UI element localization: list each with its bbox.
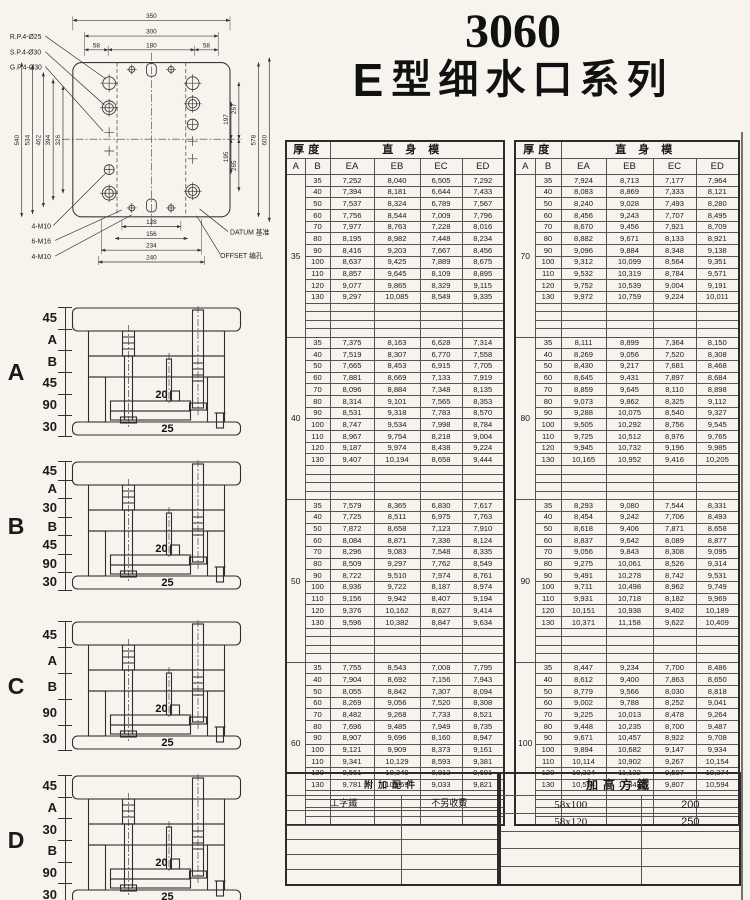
riser-row: 58x120250 <box>500 813 740 831</box>
diagram-letter: A <box>4 303 28 441</box>
price-cell: 9,400 <box>606 674 653 686</box>
price-cell: 7,617 <box>462 500 504 512</box>
price-row: 908,4169,2037,6678,456 <box>286 245 504 257</box>
price-cell: 7,433 <box>462 186 504 198</box>
riser-price-cell <box>641 831 740 849</box>
price-cell: 9,376 <box>330 605 374 617</box>
price-cell: 8,627 <box>420 605 462 617</box>
price-cell: 10,129 <box>374 756 420 768</box>
price-cell: 8,974 <box>462 581 504 593</box>
price-row: 1009,31210,0998,5649,351 <box>515 256 739 268</box>
price-cell: 7,519 <box>330 349 374 361</box>
price-cell: 9,534 <box>374 419 420 431</box>
price-cell: 7,665 <box>330 360 374 372</box>
price-cell: 9,318 <box>374 407 420 419</box>
accessories-left-table: 附加配件工字鐵不另收費 <box>285 772 499 886</box>
dim-label: 240 <box>146 255 157 262</box>
col-header: A <box>515 159 535 175</box>
price-cell: 80 <box>535 396 561 408</box>
price-cell: 110 <box>305 593 330 605</box>
price-cell: 90 <box>535 245 561 257</box>
price-cell: 10,457 <box>606 732 653 744</box>
price-cell: 7,133 <box>420 372 462 384</box>
mold-section-drawing: 2025 <box>64 305 254 437</box>
price-row: 12010,15110,9389,40210,189 <box>515 605 739 617</box>
price-cell: 9,267 <box>653 756 696 768</box>
price-cell: 9,431 <box>606 372 653 384</box>
price-row: 407,5198,3076,7707,558 <box>286 349 504 361</box>
price-cell: 8,456 <box>462 245 504 257</box>
empty-row <box>515 474 739 483</box>
price-cell: 60 <box>535 210 561 222</box>
price-row: 607,7568,5447,0097,796 <box>286 210 504 222</box>
riser-size-cell: 58x100 <box>500 796 641 814</box>
price-cell: 7,919 <box>462 372 504 384</box>
price-cell: 11,158 <box>606 617 653 629</box>
price-cell: 9,002 <box>561 697 606 709</box>
price-cell: 10,075 <box>606 407 653 419</box>
price-cell: 8,658 <box>374 523 420 535</box>
price-cell: 9,242 <box>606 511 653 523</box>
price-cell: 10,165 <box>561 454 606 466</box>
price-cell: 9,456 <box>606 221 653 233</box>
hole-pattern <box>102 64 199 212</box>
price-row: 1009,1219,9098,3739,161 <box>286 744 504 756</box>
price-cell: 10,371 <box>561 617 606 629</box>
price-cell: 50 <box>305 523 330 535</box>
dim-label: 540 <box>14 134 21 145</box>
price-cell: 7,008 <box>420 662 462 674</box>
price-cell: 8,269 <box>330 697 374 709</box>
dim-label: A <box>28 797 64 819</box>
price-cell: 10,151 <box>561 605 606 617</box>
accessories-header-row: 附加配件 <box>286 773 498 796</box>
price-cell: 7,520 <box>653 349 696 361</box>
price-cell: 9,985 <box>696 442 739 454</box>
callout-m10-2: 4-M10 <box>32 254 52 261</box>
price-cell: 60 <box>305 697 330 709</box>
header-thickness: 厚度 <box>286 141 330 159</box>
price-cell: 35 <box>305 337 330 349</box>
price-cell: 7,974 <box>420 570 462 582</box>
accessory-cell <box>401 840 498 855</box>
mold-structure-diagram-c: C45AB90302025 <box>4 617 270 755</box>
price-cell: 8,016 <box>462 221 504 233</box>
price-cell: 6,505 <box>420 175 462 187</box>
price-cell: 10,162 <box>374 605 420 617</box>
price-row: 807,6969,4857,9498,735 <box>286 721 504 733</box>
dim-label: A <box>28 647 64 673</box>
price-cell: 8,936 <box>330 581 374 593</box>
price-cell: 8,133 <box>653 233 696 245</box>
price-cell: 80 <box>305 233 330 245</box>
col-header: ED <box>696 159 739 175</box>
price-cell: 9,645 <box>374 268 420 280</box>
empty-row <box>515 312 739 321</box>
price-row: 508,6189,4067,8718,658 <box>515 523 739 535</box>
price-cell: 8,308 <box>462 697 504 709</box>
empty-row <box>515 329 739 338</box>
price-row: 407,7258,5116,9757,763 <box>286 511 504 523</box>
price-cell: 9,115 <box>462 280 504 292</box>
price-cell: 8,150 <box>696 337 739 349</box>
col-header: EB <box>606 159 653 175</box>
price-cell: 60 <box>535 372 561 384</box>
price-cell: 6,770 <box>420 349 462 361</box>
series-name: 型细水口系列 <box>391 59 673 101</box>
price-cell: 7,681 <box>653 360 696 372</box>
price-cell: 8,982 <box>374 233 420 245</box>
price-cell: 100 <box>535 744 561 756</box>
price-cell: 7,696 <box>330 721 374 733</box>
price-cell: 100 <box>535 581 561 593</box>
dim-label: 197 <box>223 114 230 125</box>
dim-label: 45 <box>28 461 64 480</box>
price-cell: 9,485 <box>374 721 420 733</box>
price-cell: 10,154 <box>696 756 739 768</box>
price-cell: 8,407 <box>420 593 462 605</box>
price-cell: 8,761 <box>462 570 504 582</box>
price-row: 1108,9679,7548,2189,004 <box>286 431 504 443</box>
price-cell: 8,882 <box>561 233 606 245</box>
price-cell: 6,915 <box>420 360 462 372</box>
price-cell: 9,708 <box>696 732 739 744</box>
dim-label: 90 <box>28 862 64 884</box>
price-cell: 8,329 <box>420 280 462 292</box>
price-cell: 40 <box>305 674 330 686</box>
empty-row <box>286 303 504 312</box>
price-cell: 50 <box>535 360 561 372</box>
price-cell: 10,114 <box>561 756 606 768</box>
price-cell: 110 <box>535 268 561 280</box>
price-cell: 10,938 <box>606 605 653 617</box>
dim-label: 578 <box>251 134 258 145</box>
price-cell: 8,454 <box>561 511 606 523</box>
price-cell: 9,056 <box>606 349 653 361</box>
price-cell: 100 <box>305 419 330 431</box>
price-cell: 7,292 <box>462 175 504 187</box>
price-cell: 10,718 <box>606 593 653 605</box>
price-row: 1309,40710,1948,6589,444 <box>286 454 504 466</box>
price-cell: 8,182 <box>653 593 696 605</box>
price-cell: 8,482 <box>330 709 374 721</box>
price-subheader-row: ABEAEBECED <box>286 159 504 175</box>
price-row: 408,0838,8697,3338,121 <box>515 186 739 198</box>
header-straight-mold: 直身模 <box>330 141 504 159</box>
price-cell: 10,189 <box>696 605 739 617</box>
price-cell: 8,658 <box>696 523 739 535</box>
price-cell: 8,324 <box>374 198 420 210</box>
mold-structure-diagram-a: A45AB4590302025 <box>4 303 270 441</box>
price-cell: 7,733 <box>420 709 462 721</box>
price-row: 1309,59610,3828,8479,634 <box>286 617 504 629</box>
price-cell: 8,779 <box>561 686 606 698</box>
price-cell: 9,634 <box>462 617 504 629</box>
price-row: 1309,29710,0858,5499,335 <box>286 291 504 303</box>
price-cell: 120 <box>305 605 330 617</box>
price-cell: 9,531 <box>696 570 739 582</box>
price-cell: 9,416 <box>653 454 696 466</box>
price-cell: 8,181 <box>374 186 420 198</box>
price-cell: 8,416 <box>330 245 374 257</box>
price-cell: 9,297 <box>374 558 420 570</box>
price-row: 1309,97210,7599,22410,011 <box>515 291 739 303</box>
price-row: 408,4549,2427,7068,493 <box>515 511 739 523</box>
riser-price-cell <box>641 867 740 885</box>
price-cell: 7,795 <box>462 662 504 674</box>
price-cell: 110 <box>535 593 561 605</box>
mold-plan-drawing: 350 300 58 180 58 540 534 462 394 326 57… <box>6 6 286 294</box>
dim-label: 394 <box>45 134 52 145</box>
dim-label: 267 <box>231 103 238 114</box>
price-cell: 9,187 <box>330 442 374 454</box>
price-cell: 10,205 <box>696 454 739 466</box>
price-cell: 8,612 <box>561 674 606 686</box>
price-cell: 9,341 <box>330 756 374 768</box>
price-cell: 9,532 <box>561 268 606 280</box>
riser-header-row: 加高方鐵 <box>500 773 740 796</box>
riser-price-cell: 250 <box>641 813 740 831</box>
price-row: 808,3149,1017,5658,353 <box>286 396 504 408</box>
price-cell: 8,252 <box>653 697 696 709</box>
price-cell: 10,732 <box>606 442 653 454</box>
price-row: 1209,94510,7329,1969,985 <box>515 442 739 454</box>
callout-return-pin: R.P.4-Ø25 <box>10 34 42 41</box>
price-cell: 10,194 <box>374 454 420 466</box>
price-cell: 9,203 <box>374 245 420 257</box>
price-cell: 8,869 <box>606 186 653 198</box>
price-cell: 9,865 <box>374 280 420 292</box>
diagram-letter: D <box>4 771 28 900</box>
riser-row <box>500 849 740 867</box>
price-cell: 8,353 <box>462 396 504 408</box>
price-cell: 7,700 <box>653 662 696 674</box>
price-cell: 10,759 <box>606 291 653 303</box>
price-cell: 100 <box>305 581 330 593</box>
price-cell: 9,041 <box>696 697 739 709</box>
price-row: 608,6459,4317,8978,684 <box>515 372 739 384</box>
price-cell: 8,308 <box>653 546 696 558</box>
price-cell: 9,425 <box>374 256 420 268</box>
series-title: E 型细水口系列 <box>288 56 738 104</box>
price-cell: 50 <box>305 198 330 210</box>
price-cell: 130 <box>305 454 330 466</box>
price-row: 11010,11410,9029,26710,154 <box>515 756 739 768</box>
dim-label: 58 <box>93 42 101 49</box>
dim-label: 30 <box>28 498 64 517</box>
price-cell: 8,430 <box>561 360 606 372</box>
price-cell: 7,177 <box>653 175 696 187</box>
price-cell: 8,747 <box>330 419 374 431</box>
empty-row <box>286 329 504 338</box>
price-table-left: 厚度直身模ABEAEBECED35357,2528,0406,5057,2924… <box>285 140 505 826</box>
price-cell: 7,756 <box>330 210 374 222</box>
price-cell: 10,512 <box>606 431 653 443</box>
price-cell: 7,707 <box>653 210 696 222</box>
riser-row: 58x100200 <box>500 796 740 814</box>
price-cell: 7,897 <box>653 372 696 384</box>
price-cell: 9,931 <box>561 593 606 605</box>
riser-size-cell: 58x120 <box>500 813 641 831</box>
price-cell: 70 <box>305 709 330 721</box>
price-row: 1209,0779,8658,3299,115 <box>286 280 504 292</box>
price-cell: 8,055 <box>330 686 374 698</box>
price-row: 608,8379,6428,0898,877 <box>515 535 739 547</box>
mold-section-drawing: 2025 <box>64 773 254 900</box>
price-cell: 8,847 <box>420 617 462 629</box>
empty-row <box>286 466 504 475</box>
price-row: 808,5099,2977,7628,549 <box>286 558 504 570</box>
price-cell: 10,292 <box>606 419 653 431</box>
price-cell: 9,722 <box>374 581 420 593</box>
price-cell: 7,123 <box>420 523 462 535</box>
price-cell: 8,842 <box>374 686 420 698</box>
price-cell: 7,394 <box>330 186 374 198</box>
price-cell: 7,949 <box>420 721 462 733</box>
price-cell: 10,278 <box>606 570 653 582</box>
dim-label: B <box>28 840 64 862</box>
series-letter: E <box>353 56 384 104</box>
price-cell: 9,194 <box>462 593 504 605</box>
price-cell: 130 <box>535 454 561 466</box>
accessories-title: 附加配件 <box>286 773 498 796</box>
a-thickness-cell: 80 <box>515 337 535 500</box>
empty-row <box>286 320 504 329</box>
price-cell: 80 <box>535 233 561 245</box>
price-cell: 10,539 <box>606 280 653 292</box>
riser-row <box>500 831 740 849</box>
price-cell: 9,711 <box>561 581 606 593</box>
price-cell: 8,187 <box>420 581 462 593</box>
col-header: ED <box>462 159 504 175</box>
model-number: 3060 <box>288 8 738 56</box>
price-row: 407,9048,6927,1567,943 <box>286 674 504 686</box>
price-cell: 8,722 <box>330 570 374 582</box>
price-cell: 7,348 <box>420 384 462 396</box>
price-cell: 8,094 <box>462 686 504 698</box>
price-cell: 9,788 <box>606 697 653 709</box>
price-cell: 8,083 <box>561 186 606 198</box>
price-cell: 7,998 <box>420 419 462 431</box>
price-cell: 9,487 <box>696 721 739 733</box>
catalog-page: 350 300 58 180 58 540 534 462 394 326 57… <box>0 0 750 900</box>
dim-label: 600 <box>261 134 268 145</box>
price-cell: 110 <box>305 431 330 443</box>
price-cell: 9,545 <box>696 419 739 431</box>
dim-label: 45 <box>28 372 64 394</box>
price-cell: 7,964 <box>696 175 739 187</box>
price-cell: 8,884 <box>374 384 420 396</box>
price-cell: 7,796 <box>462 210 504 222</box>
price-cell: 6,789 <box>420 198 462 210</box>
price-cell: 8,669 <box>374 372 420 384</box>
price-cell: 35 <box>305 662 330 674</box>
dim-label: 25 <box>161 577 173 589</box>
price-cell: 9,671 <box>606 233 653 245</box>
price-cell: 80 <box>305 558 330 570</box>
price-row: 608,2699,0567,5208,308 <box>286 697 504 709</box>
price-row: 1009,50510,2928,7569,545 <box>515 419 739 431</box>
title-block: 3060 E 型细水口系列 <box>288 8 738 104</box>
dim-label: 30 <box>28 883 64 900</box>
price-cell: 7,881 <box>330 372 374 384</box>
price-cell: 7,579 <box>330 500 374 512</box>
price-cell: 8,195 <box>330 233 374 245</box>
price-cell: 7,889 <box>420 256 462 268</box>
col-header: B <box>305 159 330 175</box>
price-cell: 9,288 <box>561 407 606 419</box>
price-cell: 7,375 <box>330 337 374 349</box>
price-cell: 90 <box>305 407 330 419</box>
col-header: EC <box>420 159 462 175</box>
price-header-row: 厚度直身模 <box>286 141 504 159</box>
price-cell: 8,089 <box>653 535 696 547</box>
price-cell: 6,628 <box>420 337 462 349</box>
price-cell: 35 <box>535 662 561 674</box>
price-cell: 70 <box>305 546 330 558</box>
price-cell: 7,783 <box>420 407 462 419</box>
price-cell: 9,268 <box>374 709 420 721</box>
price-cell: 40 <box>535 349 561 361</box>
col-header: B <box>535 159 561 175</box>
price-cell: 9,942 <box>374 593 420 605</box>
price-row: 1209,75210,5399,0049,191 <box>515 280 739 292</box>
price-cell: 9,972 <box>561 291 606 303</box>
dim-label: 58 <box>203 42 211 49</box>
price-cell: 50 <box>305 686 330 698</box>
price-cell: 8,763 <box>374 221 420 233</box>
accessory-row <box>286 869 498 884</box>
price-cell: 8,453 <box>374 360 420 372</box>
price-row: 708,0968,8847,3488,135 <box>286 384 504 396</box>
price-cell: 8,907 <box>330 732 374 744</box>
dim-label: 45 <box>28 307 64 329</box>
price-cell: 8,857 <box>330 268 374 280</box>
accessories-section: 附加配件工字鐵不另收費加高方鐵58x10020058x120250 <box>285 772 741 886</box>
col-header: A <box>286 159 305 175</box>
price-cell: 9,234 <box>606 662 653 674</box>
price-cell: 70 <box>535 709 561 721</box>
price-cell: 7,667 <box>420 245 462 257</box>
price-row: 909,0969,8848,3489,138 <box>515 245 739 257</box>
price-cell: 8,234 <box>462 233 504 245</box>
price-cell: 50 <box>535 523 561 535</box>
price-cell: 9,225 <box>561 709 606 721</box>
price-cell: 10,409 <box>696 617 739 629</box>
price-cell: 9,945 <box>561 442 606 454</box>
price-row: 1008,7479,5347,9988,784 <box>286 419 504 431</box>
callout-datum: DATUM 基准 <box>230 227 270 236</box>
empty-row <box>286 474 504 483</box>
price-table-right: 厚度直身模ABEAEBECED70357,9248,7137,1777,9644… <box>514 140 740 826</box>
price-cell: 9,406 <box>606 523 653 535</box>
accessory-row <box>286 810 498 825</box>
price-row: 1209,37610,1628,6279,414 <box>286 605 504 617</box>
price-cell: 9,196 <box>653 442 696 454</box>
price-cell: 9,004 <box>653 280 696 292</box>
riser-price-cell <box>641 849 740 867</box>
price-cell: 8,030 <box>653 686 696 698</box>
price-cell: 9,491 <box>561 570 606 582</box>
mold-section-drawing: 2025 <box>64 619 254 751</box>
col-header: EA <box>561 159 606 175</box>
price-cell: 9,297 <box>330 291 374 303</box>
price-cell: 80 <box>305 721 330 733</box>
price-cell: 70 <box>535 384 561 396</box>
col-header: EC <box>653 159 696 175</box>
dim-label: 462 <box>35 134 42 145</box>
price-row: 708,2969,0837,5488,335 <box>286 546 504 558</box>
